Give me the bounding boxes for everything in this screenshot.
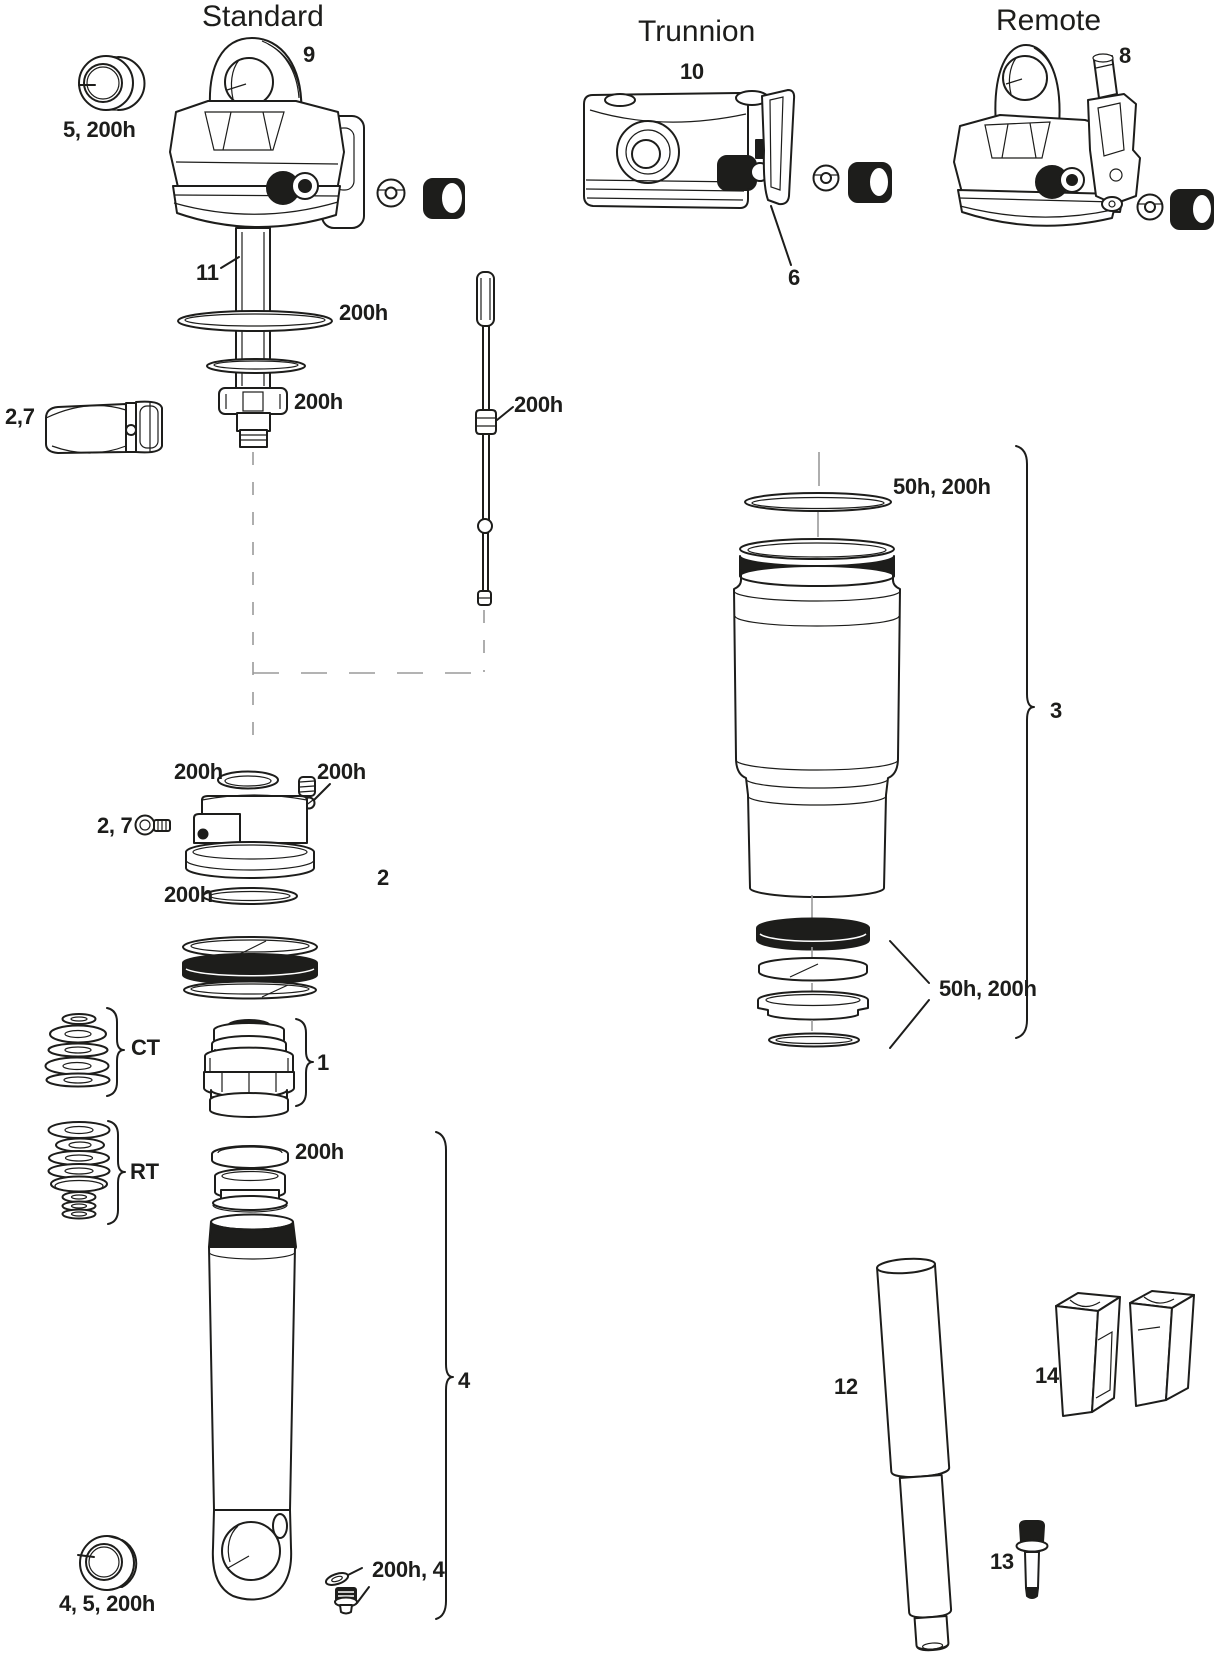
part-6-leader-line [771,206,791,265]
standard-end-cap-drawing [424,179,464,218]
label-part-12: 12 [834,1374,858,1400]
trunnion-lever-drawing [762,90,794,204]
air-can-drawing [734,452,900,920]
section-title-trunnion: Trunnion [638,15,755,49]
standard-mount-washer-drawing [377,180,405,207]
label-shaft-ring-service: 200h [339,300,388,326]
piston-bolt-drawing [136,816,171,835]
label-part-4: 4 [458,1368,470,1394]
label-piston-bolt: 2, 7 [97,813,133,839]
glide-rings-drawing [183,937,317,999]
bleed-leader-line-1 [348,1568,362,1575]
standard-damper-head-drawing [170,38,364,228]
label-part-6: 6 [788,265,800,291]
label-piston-top-seal: 200h [174,759,223,785]
rod-service-leader-line [497,407,513,420]
label-part-13: 13 [990,1549,1014,1575]
section-title-remote: Remote [996,4,1101,38]
label-part-9: 9 [303,42,315,68]
clamp-blocks-drawing [1056,1291,1194,1416]
label-shaft-clamp: 2,7 [5,404,35,430]
label-shaft-end-service: 200h [294,389,343,415]
trunnion-end-cap-drawing [849,163,891,202]
label-part-1: 1 [317,1050,329,1076]
standard-bushing-drawing [79,56,144,110]
section-title-standard: Standard [202,0,324,34]
set-screw-leader-line [314,784,330,800]
can-seal-leader-line-2 [890,1000,929,1048]
label-rod-service: 200h [514,392,563,418]
rebound-piston-drawing [204,1020,294,1117]
exploded-parts-diagram: Standard Trunnion Remote 9 10 8 6 11 5, … [0,0,1214,1655]
remote-end-cap-drawing [1171,190,1213,229]
body-bushing-drawing [78,1536,136,1590]
assembly-guide-lines [253,452,484,744]
label-part-8: 8 [1119,43,1131,69]
label-air-can-bottom-seals: 50h, 200h [939,976,1037,1002]
shaft-clamp-drawing [46,402,162,453]
rt-shim-stack-drawing [49,1122,110,1219]
label-air-can-top-seal: 50h, 200h [893,474,991,500]
label-standard-bushing: 5, 200h [63,117,136,143]
bracket-part-1 [296,1019,313,1106]
label-body-bushing: 4, 5, 200h [59,1591,155,1617]
remote-mount-washer-drawing [1137,195,1163,220]
label-part-11: 11 [196,260,219,286]
air-can-seals-drawing [757,919,869,1047]
bracket-part-4 [436,1132,453,1619]
label-seal-head-service: 200h [295,1139,344,1165]
bracket-ct [107,1008,124,1096]
label-piston-set-screw: 200h [317,759,366,785]
can-seal-leader-line-1 [890,941,929,983]
trunnion-mount-washer-drawing [813,166,839,191]
damper-body-drawing [209,1215,296,1600]
seal-head-drawing [212,1146,288,1212]
bleed-screw-drawing [325,1571,357,1614]
label-body-bleed: 200h, 4 [372,1557,445,1583]
label-piston-lower-seal: 200h [164,882,213,908]
remote-clamp-drawing [1088,94,1140,204]
fixing-bolt-drawing [1017,1521,1048,1598]
label-part-14: 14 [1035,1363,1059,1389]
label-part-2: 2 [377,865,389,891]
bracket-rt [108,1121,125,1224]
trunnion-damper-head-drawing [584,90,794,208]
remote-damper-head-drawing [954,45,1140,226]
label-ct-shims: CT [131,1035,160,1061]
bleed-leader-line-2 [357,1587,369,1603]
label-part-10: 10 [680,59,704,85]
reservoir-rod-drawing [476,272,496,605]
label-part-3: 3 [1050,698,1062,724]
diagram-line-art [0,0,1214,1655]
shaft-tool-drawing [877,1257,962,1652]
piston-assembly-drawing [136,772,318,999]
bracket-part-3 [1016,446,1034,1038]
ct-shim-stack-drawing [46,1014,110,1087]
label-rt-shims: RT [130,1159,159,1185]
